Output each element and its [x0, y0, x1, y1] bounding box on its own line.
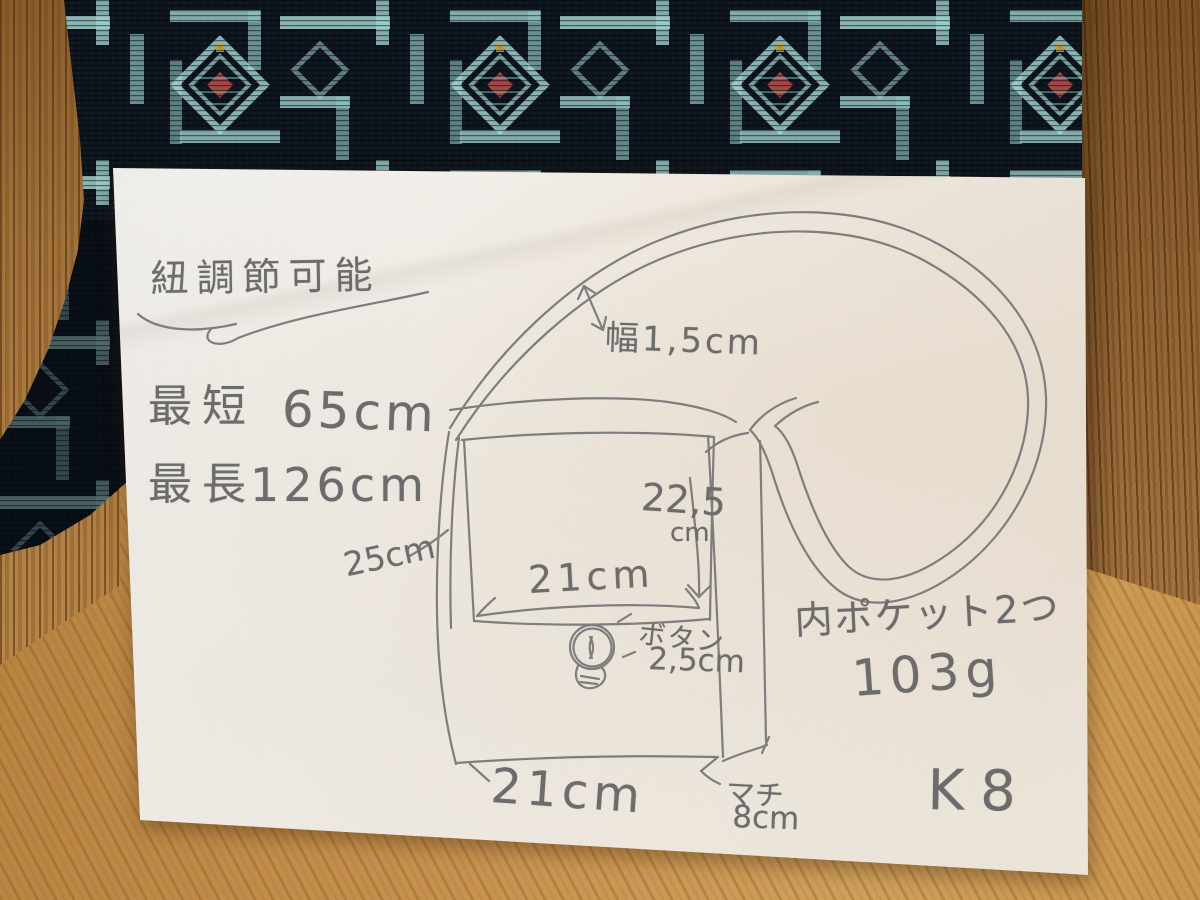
side-height-label: 25cm	[340, 527, 438, 584]
strap-longest-value: 126cm	[250, 458, 428, 512]
strap-shortest-value: 65cm	[281, 380, 439, 443]
note-title: 紐調節可能	[150, 244, 381, 303]
item-code-label: K8	[927, 758, 1032, 825]
flap-height-unit: cm	[670, 518, 710, 548]
strap-shortest-label: 最短	[148, 370, 256, 434]
strap-width-label: 幅1,5cm	[604, 310, 764, 364]
weight-label: 103g	[850, 639, 1005, 707]
annotations: 紐調節可能 最短 65cm 最長 126cm 幅1,5cm 22,5 cm 21…	[0, 0, 1200, 900]
strap-longest-label: 最長	[148, 448, 256, 512]
flap-width-label: 21cm	[527, 551, 655, 602]
bottom-width-label: 21cm	[489, 758, 647, 825]
gusset-size-label: 8cm	[732, 799, 800, 837]
inner-pockets-label: 内ポケット2つ	[793, 576, 1062, 645]
photo-scene: 紐調節可能 最短 65cm 最長 126cm 幅1,5cm 22,5 cm 21…	[0, 0, 1200, 900]
button-size-label: 2,5cm	[648, 641, 746, 680]
